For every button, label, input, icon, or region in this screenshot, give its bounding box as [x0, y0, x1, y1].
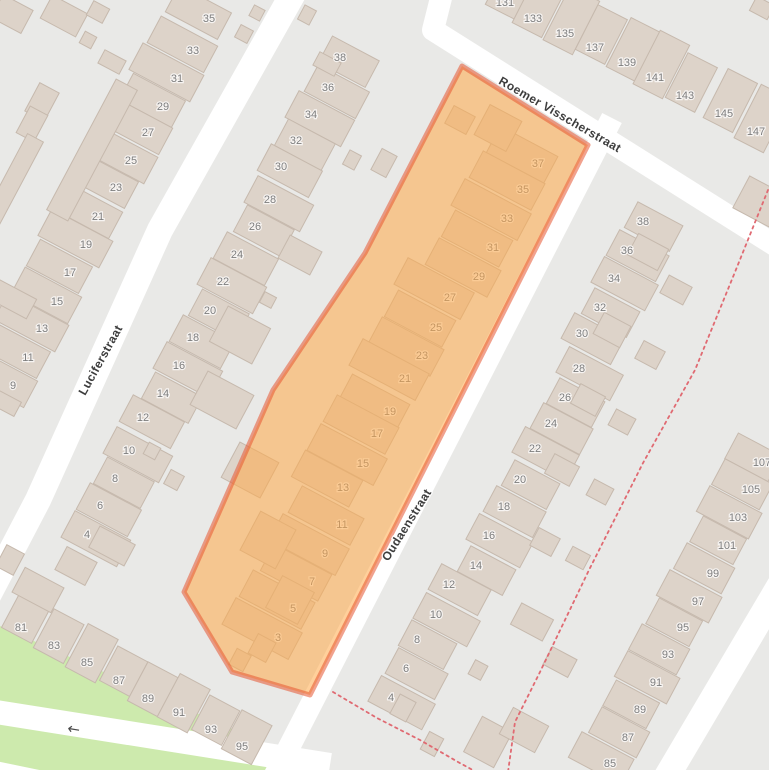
house-number-label: 93	[662, 649, 674, 661]
house-number-label: 141	[646, 72, 664, 84]
house-number-label: 91	[650, 677, 662, 689]
house-number-label: 91	[173, 707, 185, 719]
house-number-label: 16	[173, 360, 185, 372]
house-number-label: 16	[483, 530, 495, 542]
house-number-label: 33	[187, 45, 199, 57]
building	[235, 25, 254, 44]
building	[420, 731, 444, 756]
house-number-label: 133	[524, 13, 542, 25]
house-number-label: 31	[171, 73, 183, 85]
house-number-label: 22	[529, 443, 541, 455]
house-number-label: 6	[403, 663, 409, 675]
house-number-label: 24	[231, 249, 243, 261]
building	[608, 409, 636, 435]
house-number-label: 10	[123, 445, 135, 457]
house-number-label: 36	[322, 82, 334, 94]
house-number-label: 101	[718, 540, 736, 552]
house-number-label: 24	[545, 418, 557, 430]
house-number-label: 93	[205, 724, 217, 736]
house-number-label: 30	[576, 328, 588, 340]
house-number-label: 11	[22, 352, 33, 364]
house-number-label: 18	[187, 332, 199, 344]
building	[565, 546, 590, 570]
house-number-label: 36	[621, 245, 633, 257]
house-number-label: 32	[594, 302, 606, 314]
building	[371, 148, 397, 177]
building	[86, 1, 109, 24]
house-number-label: 12	[137, 412, 149, 424]
map-viewport[interactable]: 3533312927252321191715131193836343230282…	[0, 0, 769, 770]
house-number-label: 27	[142, 127, 154, 139]
house-number-label: 29	[157, 101, 169, 113]
house-number-label: 28	[573, 363, 585, 375]
building	[98, 50, 126, 75]
building	[635, 341, 666, 370]
house-number-label: 18	[498, 501, 510, 513]
house-number-label: 34	[305, 109, 317, 121]
building	[164, 469, 185, 490]
house-number-label: 17	[64, 267, 76, 279]
building	[40, 0, 88, 37]
house-number-label: 87	[113, 675, 125, 687]
house-number-label: 103	[729, 512, 747, 524]
house-number-label: 147	[747, 126, 765, 138]
house-number-label: 6	[97, 500, 103, 512]
building	[660, 275, 692, 305]
house-number-label: 137	[586, 42, 604, 54]
house-number-label: 97	[692, 596, 704, 608]
house-number-label: 10	[430, 609, 442, 621]
house-number-label: 15	[51, 296, 63, 308]
house-number-label: 85	[81, 657, 93, 669]
house-number-label: 26	[559, 392, 571, 404]
building	[0, 0, 33, 33]
house-number-label: 139	[618, 57, 636, 69]
building	[79, 31, 97, 49]
house-number-label: 89	[634, 704, 646, 716]
building	[543, 647, 577, 678]
house-number-label: 28	[264, 194, 276, 206]
house-number-label: 23	[110, 182, 122, 194]
house-number-label: 32	[290, 135, 302, 147]
house-number-label: 131	[496, 0, 514, 9]
house-number-label: 25	[125, 155, 137, 167]
house-number-label: 4	[84, 529, 90, 541]
house-number-label: 87	[622, 732, 634, 744]
house-number-label: 95	[236, 741, 248, 753]
house-number-label: 20	[204, 305, 216, 317]
house-number-label: 26	[249, 221, 261, 233]
building	[298, 5, 317, 25]
house-number-label: 8	[112, 473, 118, 485]
house-number-label: 30	[275, 161, 287, 173]
house-number-label: 35	[203, 13, 215, 25]
house-number-label: 145	[715, 108, 733, 120]
house-number-label: 38	[637, 216, 649, 228]
house-number-label: 9	[10, 380, 16, 392]
house-number-label: 107	[753, 457, 769, 469]
house-number-label: 22	[217, 276, 229, 288]
house-number-label: 34	[608, 273, 620, 285]
house-number-label: 12	[443, 579, 455, 591]
house-number-label: 95	[677, 622, 689, 634]
building	[468, 660, 488, 681]
map-canvas[interactable]: 3533312927252321191715131193836343230282…	[0, 0, 769, 770]
building	[249, 5, 265, 21]
house-number-label: 135	[556, 28, 574, 40]
house-number-label: 105	[742, 484, 760, 496]
house-number-label: 14	[470, 560, 482, 572]
building	[343, 150, 362, 170]
house-number-label: 4	[388, 692, 394, 704]
building	[749, 0, 769, 20]
house-number-label: 21	[92, 211, 104, 223]
house-number-label: 143	[676, 90, 694, 102]
house-number-label: 83	[48, 640, 60, 652]
house-number-label: 99	[707, 568, 719, 580]
house-number-label: 81	[15, 622, 27, 634]
building	[499, 707, 548, 752]
house-number-label: 8	[414, 634, 420, 646]
house-number-label: 89	[142, 693, 154, 705]
house-number-label: 85	[604, 758, 616, 770]
house-number-label: 13	[36, 323, 48, 335]
building	[586, 479, 614, 505]
building	[0, 134, 43, 231]
house-number-label: 20	[514, 474, 526, 486]
house-number-label: 19	[80, 239, 92, 251]
building	[510, 603, 553, 641]
house-number-label: 14	[157, 388, 169, 400]
house-number-label: 38	[334, 52, 346, 64]
